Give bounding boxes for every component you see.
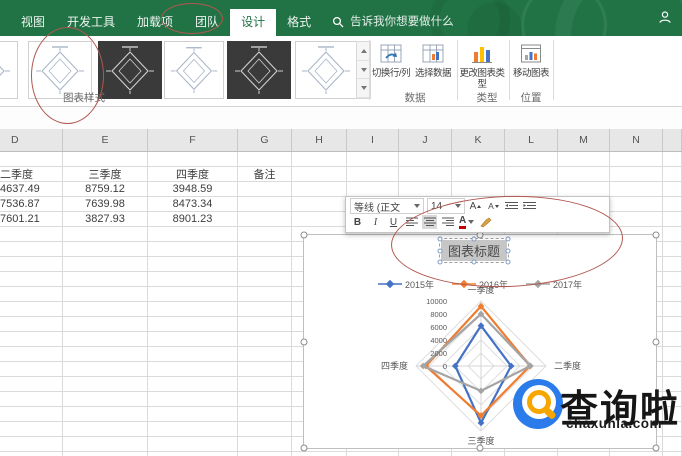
cell[interactable] bbox=[663, 212, 682, 227]
cell[interactable] bbox=[238, 242, 292, 257]
cell[interactable] bbox=[148, 422, 238, 437]
cell[interactable] bbox=[0, 347, 63, 362]
cell[interactable] bbox=[63, 152, 148, 167]
button-label: 切换行/列 bbox=[372, 69, 410, 80]
cell[interactable] bbox=[663, 197, 682, 212]
cell[interactable] bbox=[238, 422, 292, 437]
ribbon-tab-3[interactable]: 团队 bbox=[184, 9, 230, 36]
cell[interactable] bbox=[663, 347, 682, 362]
bold-button[interactable]: B bbox=[350, 215, 365, 229]
cell[interactable] bbox=[148, 227, 238, 242]
column-header[interactable]: K bbox=[452, 129, 505, 151]
ribbon-tab-1[interactable]: 开发工具 bbox=[56, 9, 126, 36]
cell[interactable]: 8473.34 bbox=[148, 197, 238, 212]
ribbon-tabs: 视图开发工具加载项团队设计格式告诉我你想要做什么 bbox=[10, 9, 454, 36]
sheet-row: 二季度三季度四季度备注 bbox=[0, 167, 682, 182]
bold-label: B bbox=[354, 217, 361, 228]
move-chart-button[interactable]: 移动图表 bbox=[511, 40, 551, 80]
cell[interactable] bbox=[610, 167, 663, 182]
cell[interactable] bbox=[148, 332, 238, 347]
cell[interactable] bbox=[63, 317, 148, 332]
cell[interactable] bbox=[452, 452, 505, 456]
column-header[interactable]: E bbox=[63, 129, 148, 151]
align-left-button[interactable] bbox=[404, 215, 419, 229]
cell[interactable] bbox=[0, 302, 63, 317]
cell[interactable] bbox=[292, 182, 347, 197]
chart-style-thumbnail-0[interactable] bbox=[0, 41, 18, 99]
column-header[interactable]: M bbox=[558, 129, 610, 151]
italic-button[interactable]: I bbox=[368, 215, 383, 229]
search-icon bbox=[332, 9, 344, 36]
cell[interactable] bbox=[292, 152, 347, 167]
group-divider bbox=[553, 40, 554, 100]
cell[interactable] bbox=[399, 452, 452, 456]
cell[interactable] bbox=[148, 257, 238, 272]
selection-handle[interactable] bbox=[301, 445, 308, 452]
cell[interactable] bbox=[610, 452, 663, 456]
cell[interactable] bbox=[148, 392, 238, 407]
align-center-button[interactable] bbox=[422, 215, 437, 229]
cell[interactable] bbox=[148, 272, 238, 287]
shrink-font-button[interactable]: A bbox=[486, 199, 501, 213]
mini-toolbar: 等线 (正文 14 A A bbox=[345, 196, 610, 233]
cell[interactable] bbox=[238, 287, 292, 302]
chevron-down-icon bbox=[468, 220, 474, 224]
ribbon-tab-2[interactable]: 加载项 bbox=[126, 9, 184, 36]
ribbon: 图表样式 切换行/列 bbox=[0, 36, 682, 107]
switch-row-col-icon bbox=[379, 40, 403, 66]
cell[interactable] bbox=[63, 452, 148, 456]
cell[interactable] bbox=[452, 167, 505, 182]
cell[interactable] bbox=[238, 227, 292, 242]
cell[interactable] bbox=[238, 347, 292, 362]
cell[interactable] bbox=[238, 257, 292, 272]
cell[interactable] bbox=[63, 362, 148, 377]
column-header[interactable]: J bbox=[399, 129, 452, 151]
cell[interactable] bbox=[292, 452, 347, 456]
font-color-label: A bbox=[459, 216, 466, 229]
chart-style-thumbnail-4[interactable] bbox=[227, 41, 291, 99]
cell[interactable] bbox=[663, 257, 682, 272]
cell[interactable] bbox=[238, 362, 292, 377]
cell[interactable]: 三季度 bbox=[63, 167, 148, 182]
align-right-button[interactable] bbox=[440, 215, 455, 229]
cell[interactable] bbox=[148, 377, 238, 392]
cell[interactable] bbox=[347, 182, 399, 197]
svg-text:2000: 2000 bbox=[430, 349, 447, 358]
cell[interactable] bbox=[663, 242, 682, 257]
cell[interactable] bbox=[148, 242, 238, 257]
grow-font-label: A bbox=[470, 201, 477, 212]
cell[interactable] bbox=[663, 152, 682, 167]
selection-handle[interactable] bbox=[301, 232, 308, 239]
svg-text:一季度: 一季度 bbox=[467, 284, 494, 295]
column-header[interactable]: N bbox=[610, 129, 663, 151]
selection-handle[interactable] bbox=[653, 445, 660, 452]
chart-object[interactable]: 图表标题 2015年2016年2017年 0200040006000800010… bbox=[303, 234, 657, 449]
cell[interactable] bbox=[238, 272, 292, 287]
group-divider bbox=[369, 40, 370, 100]
decrease-indent-icon[interactable] bbox=[504, 199, 519, 213]
column-header[interactable]: F bbox=[148, 129, 238, 151]
cell[interactable] bbox=[148, 452, 238, 456]
cell[interactable] bbox=[238, 437, 292, 452]
cell[interactable] bbox=[63, 242, 148, 257]
font-size-dropdown[interactable]: 14 bbox=[427, 198, 465, 214]
cell[interactable] bbox=[63, 287, 148, 302]
cell[interactable] bbox=[663, 167, 682, 182]
cell[interactable] bbox=[0, 362, 63, 377]
cell[interactable] bbox=[452, 152, 505, 167]
italic-label: I bbox=[374, 217, 377, 228]
selection-handle[interactable] bbox=[477, 445, 484, 452]
cell[interactable]: 3827.93 bbox=[63, 212, 148, 227]
selection-handle[interactable] bbox=[301, 338, 308, 345]
selection-handle[interactable] bbox=[653, 232, 660, 239]
cell[interactable] bbox=[63, 437, 148, 452]
cell[interactable] bbox=[663, 317, 682, 332]
ribbon-tab-0[interactable]: 视图 bbox=[10, 9, 56, 36]
cell[interactable] bbox=[148, 152, 238, 167]
shrink-font-label: A bbox=[488, 201, 494, 211]
cell[interactable] bbox=[505, 152, 558, 167]
titlebar-decoration bbox=[467, 2, 522, 36]
ribbon-tab-4[interactable]: 设计 bbox=[230, 9, 276, 36]
search-placeholder: 告诉我你想要做什么 bbox=[350, 9, 454, 36]
cell[interactable] bbox=[238, 407, 292, 422]
select-data-button[interactable]: 选择数据 bbox=[412, 40, 454, 80]
format-painter-icon[interactable] bbox=[478, 215, 493, 229]
change-chart-type-icon bbox=[470, 40, 494, 66]
column-headers: DEFGHIJKLMN bbox=[0, 129, 682, 152]
cell[interactable] bbox=[292, 197, 347, 212]
cell[interactable] bbox=[63, 227, 148, 242]
move-chart-icon bbox=[519, 40, 543, 66]
cell[interactable]: 7639.98 bbox=[63, 197, 148, 212]
cell[interactable] bbox=[63, 392, 148, 407]
select-data-icon bbox=[421, 40, 445, 66]
cell[interactable] bbox=[452, 182, 505, 197]
cell[interactable] bbox=[292, 212, 347, 227]
column-header[interactable]: L bbox=[505, 129, 558, 151]
cell[interactable] bbox=[238, 302, 292, 317]
cell[interactable] bbox=[63, 272, 148, 287]
cell[interactable] bbox=[663, 227, 682, 242]
cell[interactable] bbox=[505, 182, 558, 197]
underline-button[interactable]: U bbox=[386, 215, 401, 229]
cell[interactable] bbox=[238, 392, 292, 407]
svg-text:10000: 10000 bbox=[426, 297, 447, 306]
cell[interactable] bbox=[663, 362, 682, 377]
svg-text:四季度: 四季度 bbox=[381, 360, 408, 371]
cell[interactable] bbox=[148, 302, 238, 317]
cell[interactable] bbox=[610, 212, 663, 227]
cell[interactable] bbox=[505, 167, 558, 182]
font-size-value: 14 bbox=[431, 201, 452, 212]
group-label-location: 位置 bbox=[498, 90, 564, 105]
cell[interactable] bbox=[663, 182, 682, 197]
cell[interactable] bbox=[0, 317, 63, 332]
ribbon-tab-5[interactable]: 格式 bbox=[276, 9, 322, 36]
cell[interactable] bbox=[663, 272, 682, 287]
cell[interactable] bbox=[0, 332, 63, 347]
chevron-down-icon bbox=[455, 204, 461, 208]
cell[interactable] bbox=[505, 452, 558, 456]
column-header[interactable]: I bbox=[347, 129, 399, 151]
sheet-row bbox=[0, 152, 682, 167]
cell[interactable] bbox=[0, 437, 63, 452]
cell[interactable] bbox=[399, 152, 452, 167]
cell[interactable] bbox=[663, 392, 682, 407]
cell[interactable] bbox=[292, 167, 347, 182]
cell[interactable] bbox=[663, 287, 682, 302]
cell[interactable] bbox=[663, 377, 682, 392]
column-header[interactable]: G bbox=[238, 129, 292, 151]
cell[interactable] bbox=[399, 167, 452, 182]
chart-style-thumbnail-3[interactable] bbox=[164, 41, 224, 99]
cell[interactable] bbox=[0, 407, 63, 422]
grow-font-button[interactable]: A bbox=[468, 199, 483, 213]
cell[interactable] bbox=[663, 407, 682, 422]
cell[interactable] bbox=[399, 182, 452, 197]
cell[interactable] bbox=[238, 377, 292, 392]
cell[interactable] bbox=[0, 392, 63, 407]
chevron-down-icon bbox=[414, 204, 420, 208]
column-header[interactable]: D bbox=[0, 129, 63, 151]
titlebar: 视图开发工具加载项团队设计格式告诉我你想要做什么 bbox=[0, 0, 682, 36]
cell[interactable] bbox=[0, 377, 63, 392]
font-color-button[interactable]: A bbox=[458, 215, 475, 229]
cell[interactable]: 二季度 bbox=[0, 167, 63, 182]
cell[interactable] bbox=[558, 152, 610, 167]
cell[interactable] bbox=[148, 287, 238, 302]
sheet-row: 4637.498759.123948.59 bbox=[0, 182, 682, 197]
cell[interactable] bbox=[148, 362, 238, 377]
cell[interactable] bbox=[663, 437, 682, 452]
cell[interactable] bbox=[63, 347, 148, 362]
cell[interactable] bbox=[238, 332, 292, 347]
svg-text:8000: 8000 bbox=[430, 310, 447, 319]
cell[interactable] bbox=[0, 287, 63, 302]
cell[interactable] bbox=[238, 317, 292, 332]
cell[interactable]: 备注 bbox=[238, 167, 292, 182]
svg-text:0: 0 bbox=[443, 362, 447, 371]
cell[interactable] bbox=[347, 452, 399, 456]
formula-bar-strip bbox=[0, 107, 682, 130]
font-name-value: 等线 (正文 bbox=[354, 199, 411, 214]
svg-text:6000: 6000 bbox=[430, 323, 447, 332]
radar-chart: 0200040006000800010000一季度二季度三季度四季度 bbox=[304, 235, 658, 450]
cell[interactable] bbox=[63, 257, 148, 272]
user-icon bbox=[658, 10, 672, 29]
cell[interactable]: 8759.12 bbox=[63, 182, 148, 197]
cell[interactable] bbox=[663, 452, 682, 456]
cell[interactable] bbox=[0, 242, 63, 257]
cell[interactable] bbox=[610, 182, 663, 197]
chart-style-thumbnail-5[interactable] bbox=[295, 41, 357, 99]
button-label: 选择数据 bbox=[415, 69, 451, 80]
group-label-data: 数据 bbox=[380, 90, 450, 105]
underline-label: U bbox=[390, 217, 397, 228]
cell[interactable] bbox=[238, 182, 292, 197]
cell[interactable] bbox=[0, 227, 63, 242]
cell[interactable] bbox=[238, 452, 292, 456]
font-name-dropdown[interactable]: 等线 (正文 bbox=[350, 198, 424, 214]
cell[interactable] bbox=[63, 422, 148, 437]
cell[interactable] bbox=[238, 197, 292, 212]
cell[interactable] bbox=[0, 422, 63, 437]
excel-window: 视图开发工具加载项团队设计格式告诉我你想要做什么 图表样式 bbox=[0, 0, 682, 456]
cell[interactable]: 3948.59 bbox=[148, 182, 238, 197]
cell[interactable] bbox=[558, 182, 610, 197]
cell[interactable] bbox=[238, 212, 292, 227]
cell[interactable]: 四季度 bbox=[148, 167, 238, 182]
titlebar-decoration bbox=[521, 0, 607, 36]
column-header[interactable]: H bbox=[292, 129, 347, 151]
change-chart-type-button[interactable]: 更改图表类型 bbox=[459, 40, 505, 90]
cell[interactable] bbox=[558, 167, 610, 182]
cell[interactable]: 4637.49 bbox=[0, 182, 63, 197]
cell[interactable] bbox=[610, 152, 663, 167]
cell[interactable] bbox=[0, 152, 63, 167]
cell[interactable] bbox=[558, 452, 610, 456]
cell[interactable] bbox=[63, 332, 148, 347]
cell[interactable] bbox=[0, 257, 63, 272]
selection-handle[interactable] bbox=[653, 338, 660, 345]
button-label: 更改图表类型 bbox=[459, 69, 505, 90]
cell[interactable] bbox=[63, 377, 148, 392]
cell[interactable] bbox=[610, 197, 663, 212]
cell[interactable] bbox=[663, 422, 682, 437]
cell[interactable] bbox=[148, 317, 238, 332]
cell[interactable] bbox=[347, 167, 399, 182]
cell[interactable] bbox=[663, 302, 682, 317]
cell[interactable] bbox=[347, 152, 399, 167]
svg-text:二季度: 二季度 bbox=[554, 360, 581, 371]
cell[interactable] bbox=[0, 272, 63, 287]
cell[interactable] bbox=[148, 407, 238, 422]
sheet-row bbox=[0, 452, 682, 456]
switch-row-col-button[interactable]: 切换行/列 bbox=[371, 40, 411, 80]
column-header[interactable] bbox=[663, 129, 682, 151]
increase-indent-icon[interactable] bbox=[522, 199, 537, 213]
cell[interactable]: 7601.21 bbox=[0, 212, 63, 227]
cell[interactable]: 7536.87 bbox=[0, 197, 63, 212]
cell[interactable] bbox=[0, 452, 63, 456]
tell-me-search[interactable]: 告诉我你想要做什么 bbox=[332, 9, 454, 36]
cell[interactable]: 8901.23 bbox=[148, 212, 238, 227]
cell[interactable] bbox=[63, 407, 148, 422]
svg-text:4000: 4000 bbox=[430, 336, 447, 345]
group-label-chart-styles: 图表样式 bbox=[36, 90, 132, 105]
cell[interactable] bbox=[148, 437, 238, 452]
account-area[interactable] bbox=[658, 10, 672, 29]
cell[interactable] bbox=[238, 152, 292, 167]
button-label: 移动图表 bbox=[513, 69, 549, 80]
cell[interactable] bbox=[63, 302, 148, 317]
cell[interactable] bbox=[148, 347, 238, 362]
cell[interactable] bbox=[663, 332, 682, 347]
